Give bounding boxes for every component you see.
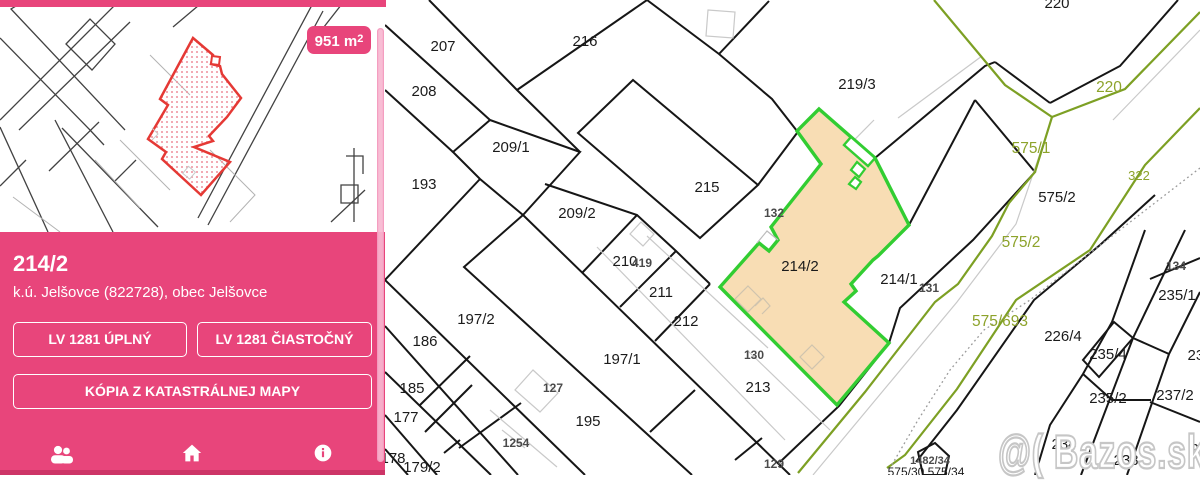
svg-text:186: 186 — [412, 333, 437, 350]
svg-text:132: 132 — [764, 206, 784, 220]
svg-text:127: 127 — [543, 381, 563, 395]
svg-text:130: 130 — [744, 348, 764, 362]
svg-text:237/2: 237/2 — [1156, 387, 1194, 404]
svg-text:216: 216 — [572, 33, 597, 50]
svg-text:134: 134 — [1166, 259, 1186, 273]
svg-text:193: 193 — [411, 176, 436, 193]
svg-text:220: 220 — [1096, 79, 1122, 96]
svg-text:131: 131 — [919, 281, 939, 295]
svg-text:197/1: 197/1 — [603, 351, 641, 368]
svg-text:185: 185 — [399, 380, 424, 397]
svg-text:575/693: 575/693 — [972, 313, 1028, 330]
svg-text:212: 212 — [673, 313, 698, 330]
svg-text:235/1: 235/1 — [1158, 287, 1196, 304]
svg-text:575/2: 575/2 — [1038, 189, 1076, 206]
svg-text:129: 129 — [764, 457, 784, 471]
svg-text:226/4: 226/4 — [1044, 328, 1082, 345]
svg-text:208: 208 — [411, 83, 436, 100]
svg-text:575/2: 575/2 — [1002, 234, 1041, 251]
svg-text:214/2: 214/2 — [781, 258, 819, 275]
svg-text:214/1: 214/1 — [880, 271, 918, 288]
svg-text:1254: 1254 — [503, 436, 530, 450]
svg-text:209/1: 209/1 — [492, 139, 530, 156]
svg-text:195: 195 — [575, 413, 600, 430]
svg-text:235/2: 235/2 — [1089, 390, 1127, 407]
svg-text:1482/34: 1482/34 — [910, 455, 951, 467]
svg-text:211: 211 — [649, 284, 673, 301]
svg-text:215: 215 — [694, 179, 719, 196]
svg-text:213: 213 — [745, 379, 770, 396]
svg-text:235: 235 — [1187, 347, 1200, 364]
svg-text:219/3: 219/3 — [838, 76, 876, 93]
svg-text:209/2: 209/2 — [558, 205, 596, 222]
svg-text:419: 419 — [632, 256, 652, 270]
svg-text:207: 207 — [430, 38, 455, 55]
svg-text:177: 177 — [393, 409, 418, 426]
svg-text:235/4: 235/4 — [1089, 346, 1127, 363]
svg-text:197/2: 197/2 — [457, 311, 495, 328]
svg-text:322: 322 — [1128, 168, 1150, 183]
svg-text:179/2: 179/2 — [403, 459, 441, 475]
svg-text:575/1: 575/1 — [1012, 140, 1051, 157]
svg-text:220: 220 — [1044, 0, 1069, 12]
